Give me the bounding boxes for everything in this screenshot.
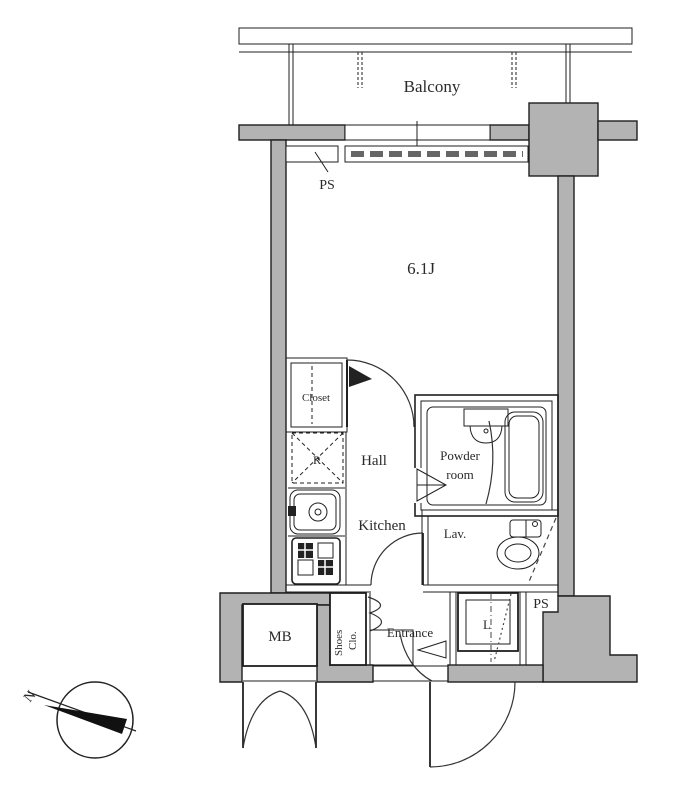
mb-label: MB xyxy=(268,629,291,645)
laundry-space xyxy=(458,592,526,665)
lav-door xyxy=(371,533,423,585)
shoes-label-1: Shoes xyxy=(333,630,345,656)
room-size-label: 6.1J xyxy=(407,259,435,278)
lav-label: Lav. xyxy=(444,526,467,541)
shoes-label-2: Clo. xyxy=(347,631,359,650)
pipe-space-top xyxy=(286,146,338,172)
closet-label: Closet xyxy=(302,392,330,404)
ps-bottom-label: PS xyxy=(533,597,549,612)
hall-label: Hall xyxy=(361,453,387,469)
floor-plan-page: Balcony xyxy=(0,0,693,800)
compass-north-label: N xyxy=(21,688,39,705)
powder-room-label-1: Powder xyxy=(440,448,480,463)
kitchen-label: Kitchen xyxy=(358,518,406,534)
floor-plan: Balcony xyxy=(0,0,693,800)
powder-room xyxy=(413,395,558,516)
room-door xyxy=(347,360,414,427)
fridge-label: R xyxy=(313,453,321,467)
walls xyxy=(220,103,637,682)
balcony-label: Balcony xyxy=(404,77,461,96)
stove xyxy=(292,538,340,584)
lavatory xyxy=(422,510,558,585)
mb-doors xyxy=(243,682,316,748)
entrance-east-wall xyxy=(450,592,456,665)
powder-room-label-2: room xyxy=(446,467,473,482)
laundry-label: L xyxy=(483,617,491,632)
hall-south-wall xyxy=(286,585,558,592)
ps-top-label: PS xyxy=(319,178,335,193)
kitchen-sink xyxy=(288,490,340,534)
entrance-label: Entrance xyxy=(387,625,433,640)
entrance-door xyxy=(430,682,515,767)
compass xyxy=(28,682,136,758)
